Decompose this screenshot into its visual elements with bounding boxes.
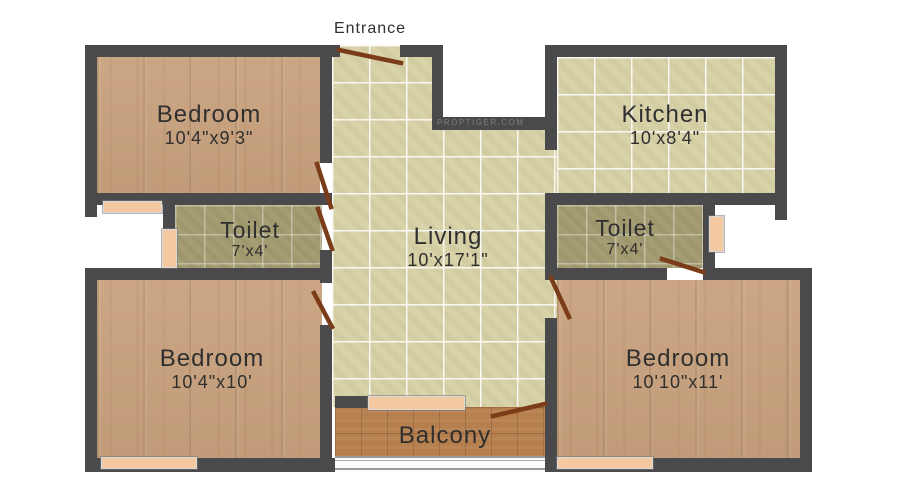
door-toilet-left bbox=[318, 209, 332, 249]
door-bedroom-top-left bbox=[317, 164, 331, 207]
door-leaves bbox=[0, 0, 900, 500]
door-bedroom-bottom-left bbox=[314, 293, 332, 327]
watermark: proptiger.com bbox=[437, 118, 557, 130]
door-toilet-right bbox=[662, 259, 703, 272]
floor-plan: Entrance proptiger.com Bedroom 10'4"x9'3… bbox=[0, 0, 900, 500]
door-bedroom-bottom-right bbox=[551, 278, 569, 317]
entrance-label: Entrance bbox=[310, 20, 430, 40]
door-balcony bbox=[493, 404, 545, 416]
door-entrance bbox=[339, 50, 401, 63]
